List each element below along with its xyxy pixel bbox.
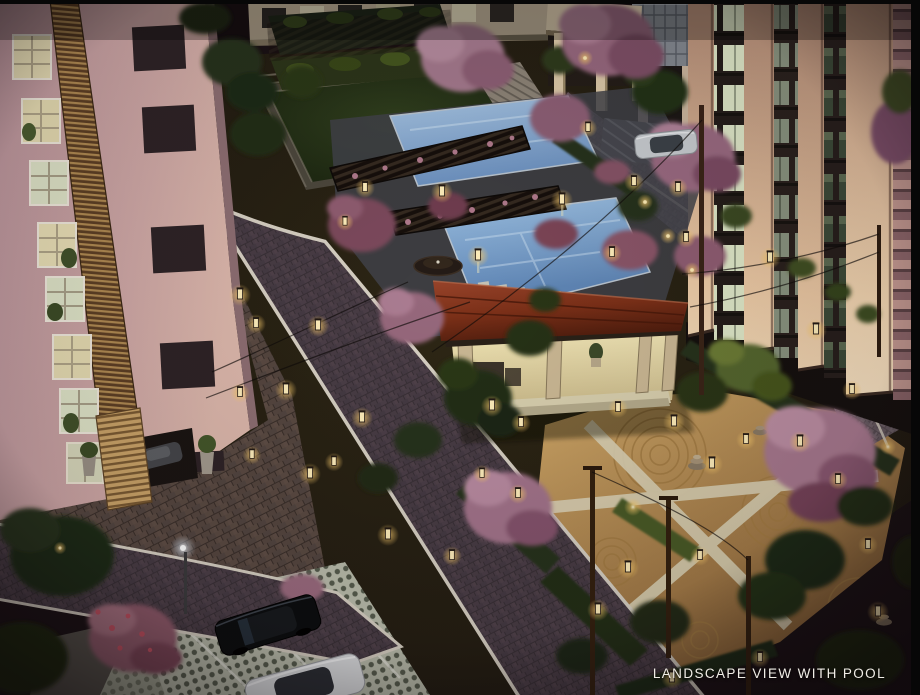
vignette	[0, 0, 920, 695]
image-caption: LANDSCAPE VIEW WITH POOL	[653, 666, 886, 681]
render-canvas	[0, 0, 920, 695]
landscape-render: LANDSCAPE VIEW WITH POOL	[0, 0, 920, 695]
